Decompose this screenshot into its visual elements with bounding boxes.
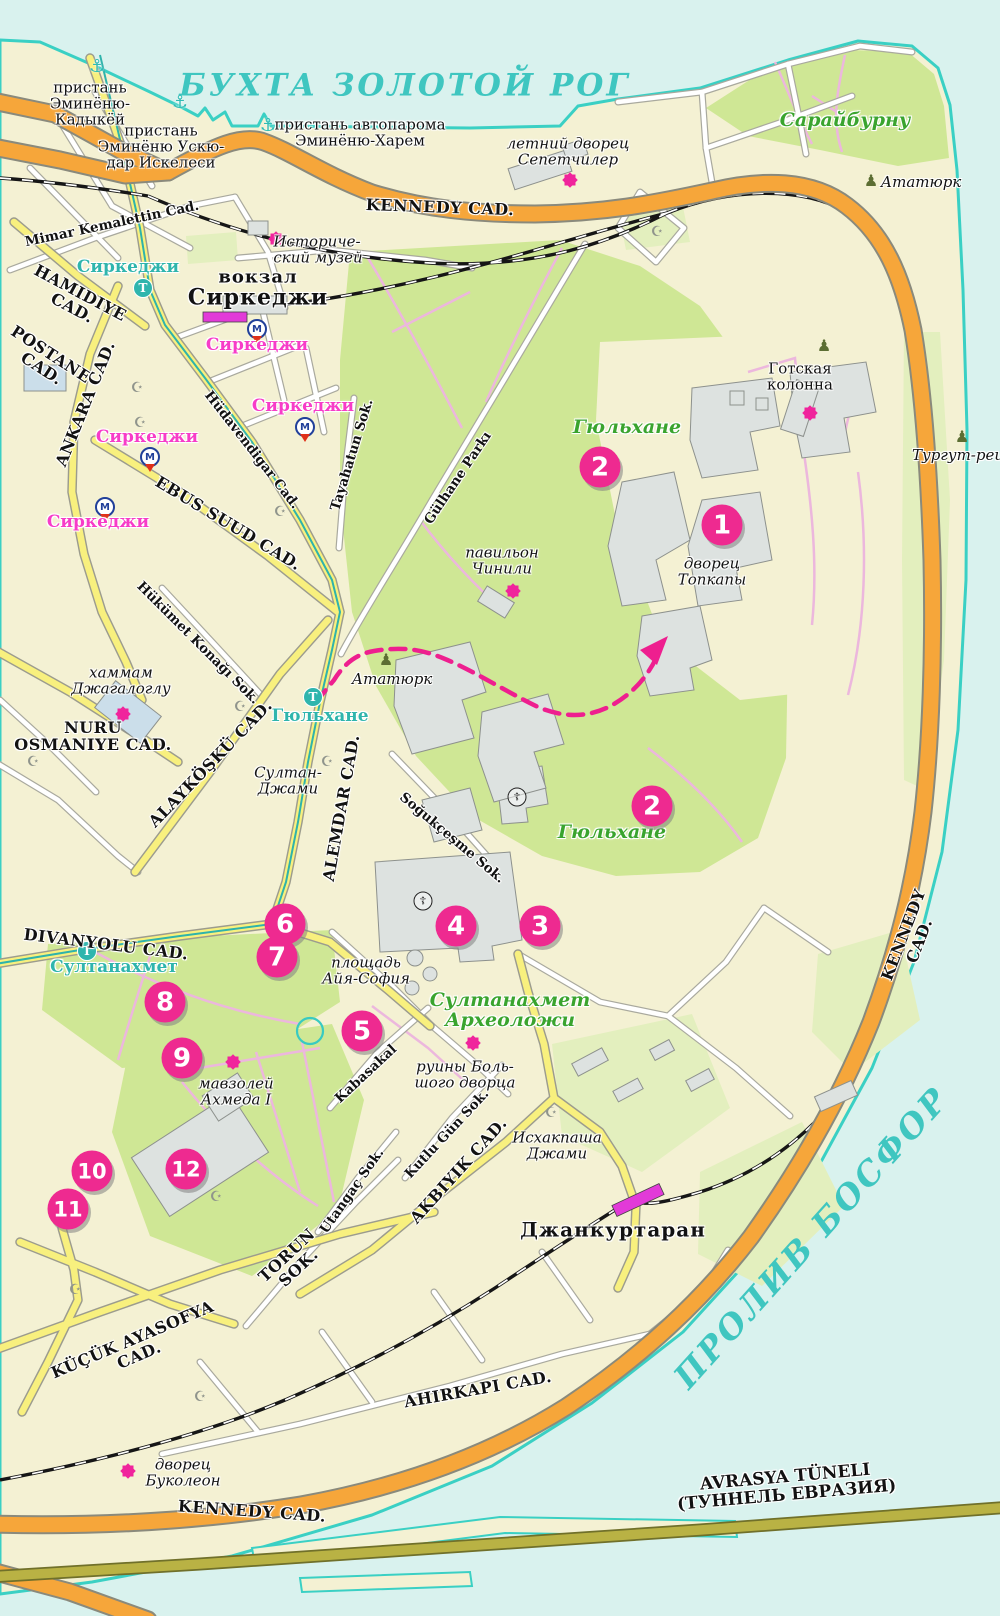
park-small-1: [186, 232, 238, 264]
map-base-layer: [0, 0, 1000, 1616]
sirkeci-station-building: [223, 296, 287, 314]
istanbul-sultanahmet-tourist-map: ⚓⚓⚓TTTMMMM☪☪☪☪☪☪☪☪☪☪☪☦☦♟♟♟♟ БУХТА ЗОЛОТО…: [0, 0, 1000, 1616]
sirkeci-station-rect: [203, 312, 247, 322]
